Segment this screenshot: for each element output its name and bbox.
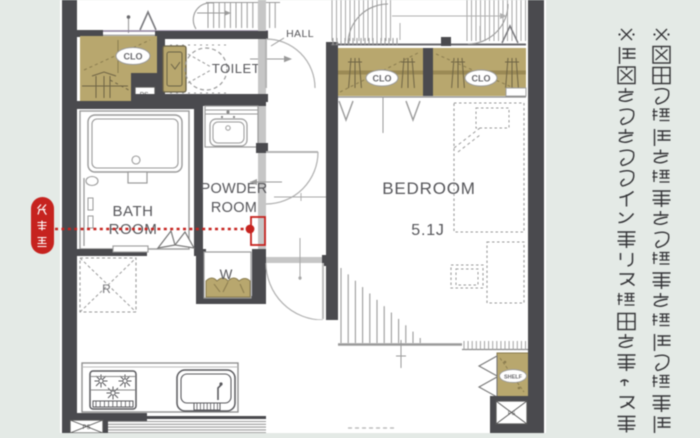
svg-text:W: W xyxy=(220,267,233,282)
svg-text:CLO: CLO xyxy=(472,74,491,84)
svg-text:ROOM: ROOM xyxy=(211,200,257,216)
svg-text:CLO: CLO xyxy=(373,74,392,84)
svg-text:PS: PS xyxy=(82,425,90,431)
svg-text:R: R xyxy=(102,282,111,296)
svg-text:BATH: BATH xyxy=(113,203,154,220)
svg-text:SHELF: SHELF xyxy=(504,375,523,381)
svg-text:PS: PS xyxy=(508,411,516,417)
svg-text:CLO: CLO xyxy=(124,52,143,62)
svg-text:5.1J: 5.1J xyxy=(411,222,444,239)
svg-text:POWDER: POWDER xyxy=(200,181,267,197)
svg-text:TOILET: TOILET xyxy=(212,61,260,76)
svg-text:HALL: HALL xyxy=(286,28,314,40)
svg-text:BEDROOM: BEDROOM xyxy=(382,179,475,198)
